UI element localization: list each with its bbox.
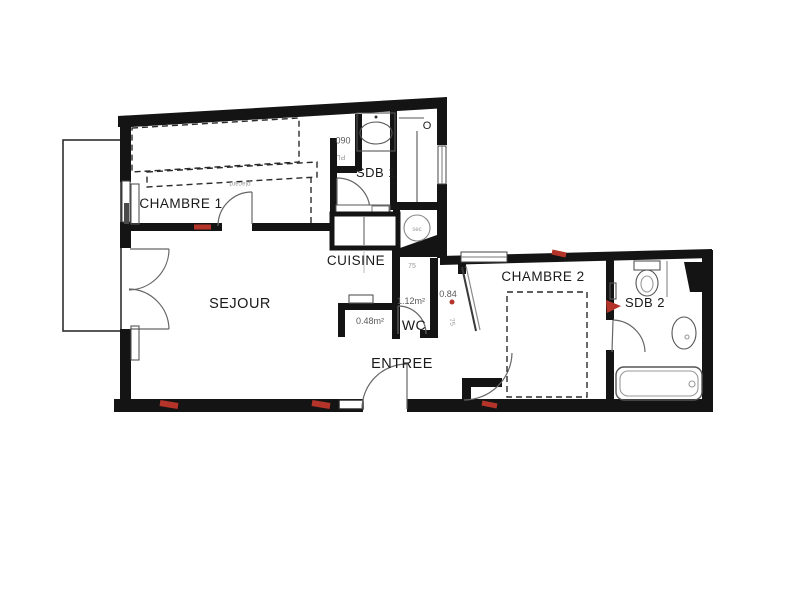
sdb1-counter [357, 113, 395, 151]
red-mark-bottom-1 [160, 403, 178, 406]
window-chambre1-detail [124, 203, 129, 224]
radiator-sejour [131, 326, 139, 360]
door-french-bottom-arc [129, 289, 169, 329]
wall-sdb2-left-lower [606, 350, 614, 399]
wall-entree-stub-v [462, 378, 471, 411]
appliance-label: sec [412, 227, 421, 233]
wall-placard-divider [355, 114, 362, 171]
dim-alcove-area: 0.48m² [356, 316, 384, 326]
door-chambre1-arc [218, 192, 252, 226]
red-mark-dot [450, 300, 455, 305]
balcony-outline [63, 140, 121, 331]
dim-corridor-2: 75 [447, 318, 455, 327]
door-chambre2-arc [464, 353, 512, 400]
kitchen-sink [372, 206, 389, 212]
room-labels: CHAMBRE 1 SEJOUR CUISINE SDB 1 WC ENTREE… [139, 165, 665, 372]
wall-left-upper [120, 116, 131, 182]
dim-placard-060: 060 [335, 135, 350, 145]
sdb1-sink [360, 122, 392, 144]
duct-shaft-sdb2 [684, 262, 702, 292]
dashed-zone-chambre1-upper [132, 118, 299, 172]
sdb1-faucet [375, 116, 378, 119]
red-mark-top-chambre2 [552, 252, 566, 255]
radiator-chambre1 [131, 184, 139, 224]
door-french-top-arc [129, 249, 169, 290]
bathtub-inner [620, 371, 698, 396]
wall-right-lower [437, 184, 447, 258]
wall-right-upper [437, 98, 447, 145]
wall-sdb1-right [390, 110, 397, 209]
toilet-bowl-inner [641, 276, 653, 292]
wall-placard-bottom [330, 166, 357, 173]
floor-plan-drawing: CHAMBRE 1 SEJOUR CUISINE SDB 1 WC ENTREE… [0, 0, 800, 595]
label-wc: WC [402, 317, 426, 333]
rotated-note: placard [229, 180, 251, 187]
dim-corridor: 75 [408, 263, 416, 270]
label-sdb2: SDB 2 [625, 295, 665, 310]
sdb2-sink-drain [685, 335, 689, 339]
label-sdb1: SDB 1 [356, 165, 396, 180]
door-sdb2-arc [613, 320, 645, 352]
kitchen-block [332, 214, 398, 248]
wall-closet-bottom [390, 202, 444, 210]
red-mark-bottom-2 [312, 403, 330, 406]
alcove-shelf [349, 295, 373, 303]
bathtub-drain [689, 381, 695, 387]
red-mark-bottom-3 [482, 403, 497, 406]
dim-placard-pl: PL [337, 153, 346, 160]
threshold-vent [339, 400, 363, 409]
label-chambre1: CHAMBRE 1 [139, 196, 222, 211]
wall-wc-stub-left [392, 330, 400, 339]
label-chambre2: CHAMBRE 2 [501, 269, 584, 284]
wall-wc-left [392, 250, 400, 337]
wall-right-block [702, 250, 713, 412]
dim-wc-area: 1.12m² [397, 296, 425, 306]
wall-wc-right [430, 258, 438, 337]
label-entree: ENTREE [371, 356, 433, 372]
duct-shaft-left [400, 235, 437, 257]
red-marks [160, 227, 621, 406]
wall-alcove-top [338, 303, 392, 310]
sdb2-sink [672, 317, 696, 349]
label-sejour: SEJOUR [209, 296, 271, 312]
dim-door-width: 0.84 [439, 289, 457, 299]
dashed-bed-chambre2 [507, 292, 587, 397]
wall-top-left-block [118, 97, 447, 127]
wall-chambre1-sejour-right [252, 223, 334, 231]
wall-bottom-right [407, 399, 713, 412]
floor-plan-page: CHAMBRE 1 SEJOUR CUISINE SDB 1 WC ENTREE… [0, 0, 800, 595]
window-o-mark: O [423, 120, 432, 132]
door-sdb2-leaf [612, 320, 613, 352]
door-chambre2-leaf [462, 267, 476, 331]
label-cuisine: CUISINE [327, 253, 385, 268]
toilet-tank [634, 261, 660, 270]
wall-alcove-left [338, 303, 345, 337]
